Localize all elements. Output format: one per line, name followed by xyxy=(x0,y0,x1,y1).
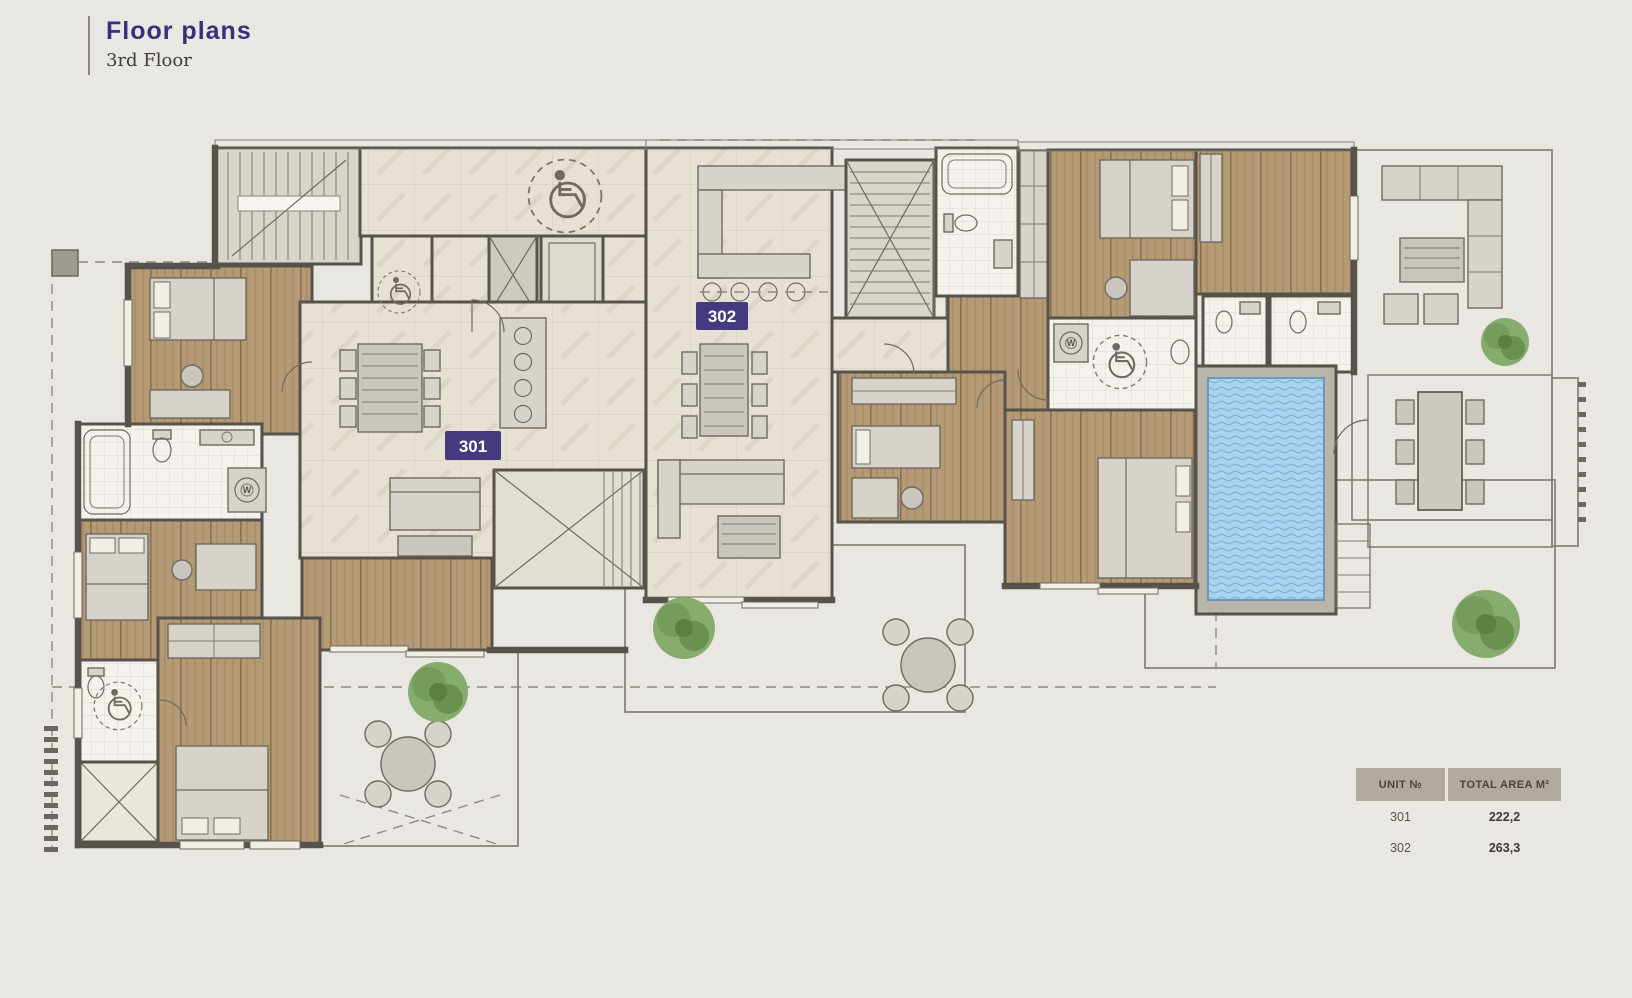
dining-table xyxy=(700,344,748,436)
washer-icon: W xyxy=(1054,324,1088,362)
round-table xyxy=(381,737,435,791)
table-header-unit: UNIT № xyxy=(1356,768,1445,801)
table-cell-unit-302: 302 xyxy=(1356,832,1445,863)
desk xyxy=(150,390,230,418)
chair xyxy=(181,365,203,387)
room-accessible-bathroom-302: W xyxy=(1048,318,1196,410)
chair xyxy=(172,560,192,580)
coffee-table xyxy=(1400,238,1464,282)
table-cell-area-302: 263,3 xyxy=(1448,832,1561,863)
boundary-marker xyxy=(52,250,78,276)
outdoor-dining-set xyxy=(1396,392,1484,510)
svg-text:301: 301 xyxy=(459,437,487,456)
tree-icon xyxy=(408,662,468,722)
tree-icon xyxy=(653,597,715,659)
desk xyxy=(1130,260,1194,316)
kitchen-counter xyxy=(698,166,848,190)
room-living-dining-302 xyxy=(646,148,848,600)
room-bedroom-302-b xyxy=(1196,150,1354,294)
unit-badge-302: 302 xyxy=(696,302,748,330)
sofa xyxy=(390,478,480,530)
stair-void-301 xyxy=(494,470,644,588)
round-table xyxy=(901,638,955,692)
outdoor-lounge-right xyxy=(1382,166,1502,324)
sink xyxy=(994,240,1012,268)
coffee-table xyxy=(718,516,780,558)
room-bathroom-302-a xyxy=(936,148,1018,296)
coffee-table xyxy=(398,536,472,556)
room-stairwell-301 xyxy=(215,148,361,264)
room-bathrooms-302-pair xyxy=(1203,296,1354,372)
chair xyxy=(1105,277,1127,299)
svg-text:W: W xyxy=(243,485,252,495)
table-cell-area-301: 222,2 xyxy=(1448,801,1561,832)
closet-302 xyxy=(1020,150,1048,298)
tree-icon xyxy=(1481,318,1529,366)
table-cell-unit-301: 301 xyxy=(1356,801,1445,832)
room-bedroom-301-a xyxy=(128,266,312,434)
pool xyxy=(1196,366,1370,614)
table-header-area: TOTAL AREA M² xyxy=(1448,768,1561,801)
svg-text:302: 302 xyxy=(708,307,736,326)
room-bedroom-302-d xyxy=(1005,410,1195,586)
patio-set-left xyxy=(365,721,451,807)
desk xyxy=(196,544,256,590)
patio-set-center xyxy=(883,619,973,711)
tree-icon xyxy=(1452,590,1520,658)
room-hall-301 xyxy=(302,558,492,650)
room-wc-301 xyxy=(80,660,160,762)
room-bedroom-301-c xyxy=(158,618,320,845)
pool-water xyxy=(1208,378,1324,600)
area-table: UNIT № TOTAL AREA M² 301 222,2 302 263,3 xyxy=(1356,768,1561,863)
exterior-ladder xyxy=(44,726,58,852)
dining-table xyxy=(358,344,422,432)
desk xyxy=(852,478,898,518)
svg-text:W: W xyxy=(1067,338,1076,348)
chair xyxy=(901,487,923,509)
unit-badge-301: 301 xyxy=(445,431,501,460)
washer-icon: W xyxy=(228,468,266,512)
room-bathroom-301: W xyxy=(78,424,266,520)
room-stairs-302 xyxy=(846,160,946,318)
kitchen-counter xyxy=(500,318,546,428)
shaft-301 xyxy=(80,762,158,842)
pool-steps xyxy=(1336,524,1370,608)
